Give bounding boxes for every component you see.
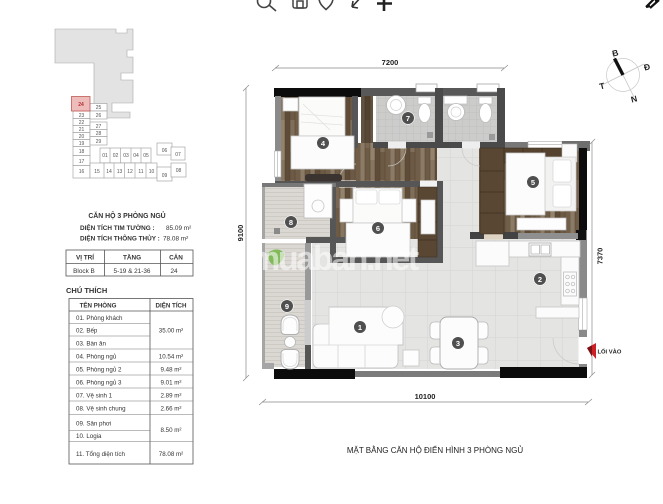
svg-text:25: 25 bbox=[96, 105, 102, 111]
svg-text:02. Bếp: 02. Bếp bbox=[76, 328, 98, 335]
svg-text:18: 18 bbox=[79, 149, 85, 155]
svg-text:9100: 9100 bbox=[236, 225, 245, 242]
svg-text:7370: 7370 bbox=[596, 248, 605, 265]
svg-text:24: 24 bbox=[78, 102, 84, 108]
svg-text:1: 1 bbox=[358, 323, 362, 332]
svg-text:21: 21 bbox=[79, 127, 85, 133]
svg-text:23: 23 bbox=[79, 113, 85, 119]
svg-text:03: 03 bbox=[123, 153, 129, 159]
svg-text:8.50 m²: 8.50 m² bbox=[161, 427, 182, 434]
svg-text:28: 28 bbox=[96, 131, 102, 137]
svg-text:05. Phòng ngủ 2: 05. Phòng ngủ 2 bbox=[76, 367, 122, 374]
svg-text:08: 08 bbox=[176, 168, 182, 174]
svg-text:29: 29 bbox=[96, 139, 102, 145]
svg-text:9.48 m²: 9.48 m² bbox=[161, 367, 182, 374]
svg-text:DIỆN TÍCH THÔNG THỦY :: DIỆN TÍCH THÔNG THỦY : bbox=[80, 234, 160, 243]
svg-text:2.66 m²: 2.66 m² bbox=[161, 406, 182, 413]
svg-text:DIỆN TÍCH: DIỆN TÍCH bbox=[156, 302, 187, 310]
svg-text:07: 07 bbox=[175, 152, 181, 158]
svg-text:12: 12 bbox=[127, 169, 133, 175]
svg-text:LỐI VÀO: LỐI VÀO bbox=[598, 349, 622, 356]
svg-text:5-19 & 21-36: 5-19 & 21-36 bbox=[114, 268, 151, 275]
svg-text:CĂN HỘ 3 PHÒNG NGỦ: CĂN HỘ 3 PHÒNG NGỦ bbox=[88, 211, 165, 220]
svg-text:16: 16 bbox=[79, 169, 85, 175]
svg-text:04: 04 bbox=[133, 153, 139, 159]
svg-text:24: 24 bbox=[170, 268, 178, 275]
svg-text:07. Vệ sinh 1: 07. Vệ sinh 1 bbox=[76, 393, 113, 400]
svg-text:MẶT BẰNG CĂN HỘ ĐIỂN HÌNH 3 PH: MẶT BẰNG CĂN HỘ ĐIỂN HÌNH 3 PHÒNG NGỦ bbox=[347, 446, 524, 455]
svg-text:10. Logia: 10. Logia bbox=[76, 433, 102, 440]
svg-text:01: 01 bbox=[102, 153, 108, 159]
svg-text:TÊN PHÒNG: TÊN PHÒNG bbox=[80, 302, 117, 310]
svg-text:10: 10 bbox=[149, 169, 155, 175]
svg-text:03. Bàn ăn: 03. Bàn ăn bbox=[76, 341, 106, 348]
svg-text:CĂN: CĂN bbox=[169, 253, 183, 262]
svg-text:78.08 m²: 78.08 m² bbox=[163, 236, 188, 243]
svg-text:78.08 m²: 78.08 m² bbox=[159, 451, 183, 458]
svg-text:27: 27 bbox=[96, 124, 102, 130]
svg-text:85.09 m²: 85.09 m² bbox=[166, 225, 191, 232]
svg-text:10100: 10100 bbox=[415, 392, 436, 401]
svg-text:2: 2 bbox=[538, 275, 542, 284]
svg-text:14: 14 bbox=[106, 169, 112, 175]
svg-text:22: 22 bbox=[79, 120, 85, 126]
svg-text:04. Phòng ngủ: 04. Phòng ngủ bbox=[76, 354, 117, 361]
svg-text:7: 7 bbox=[406, 114, 410, 123]
svg-text:06: 06 bbox=[162, 148, 168, 154]
svg-text:09: 09 bbox=[162, 173, 168, 179]
svg-text:7200: 7200 bbox=[382, 58, 399, 67]
svg-text:05: 05 bbox=[143, 153, 149, 159]
svg-text:35.00 m²: 35.00 m² bbox=[159, 328, 183, 335]
svg-text:CHÚ THÍCH: CHÚ THÍCH bbox=[66, 286, 107, 295]
svg-text:9: 9 bbox=[285, 302, 289, 311]
svg-text:9.01 m²: 9.01 m² bbox=[161, 380, 182, 387]
svg-text:26: 26 bbox=[96, 113, 102, 119]
svg-text:11. Tổng diện tích: 11. Tổng diện tích bbox=[76, 451, 126, 458]
svg-text:5: 5 bbox=[531, 178, 535, 187]
svg-text:10.54 m²: 10.54 m² bbox=[159, 354, 183, 361]
svg-text:06. Phòng ngủ 3: 06. Phòng ngủ 3 bbox=[76, 380, 122, 387]
svg-text:3: 3 bbox=[456, 339, 460, 348]
svg-text:8: 8 bbox=[289, 218, 293, 227]
svg-text:09. Sân phơi: 09. Sân phơi bbox=[76, 421, 111, 428]
svg-text:muaban.net: muaban.net bbox=[250, 240, 419, 278]
svg-text:01. Phòng khách: 01. Phòng khách bbox=[76, 315, 123, 322]
svg-text:15: 15 bbox=[94, 169, 100, 175]
svg-text:19: 19 bbox=[79, 141, 85, 147]
svg-text:6: 6 bbox=[376, 224, 380, 233]
svg-text:2.89 m²: 2.89 m² bbox=[161, 393, 182, 400]
svg-text:13: 13 bbox=[117, 169, 123, 175]
svg-text:20: 20 bbox=[79, 134, 85, 140]
svg-text:17: 17 bbox=[79, 159, 85, 165]
svg-text:Block B: Block B bbox=[73, 268, 95, 275]
svg-text:11: 11 bbox=[138, 169, 143, 175]
svg-text:DIỆN TÍCH TIM TƯỜNG :: DIỆN TÍCH TIM TƯỜNG : bbox=[80, 223, 155, 232]
svg-text:02: 02 bbox=[113, 153, 119, 159]
svg-text:08. Vệ sinh chung: 08. Vệ sinh chung bbox=[76, 406, 126, 413]
svg-text:VỊ TRÍ: VỊ TRÍ bbox=[76, 253, 94, 262]
